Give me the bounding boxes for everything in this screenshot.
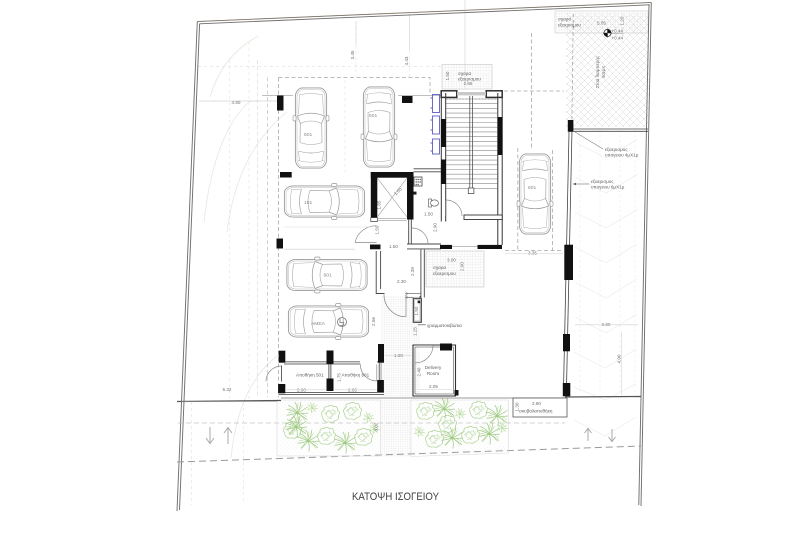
svg-text:1.30: 1.30 [515,402,520,411]
svg-text:3.02: 3.02 [374,422,379,431]
svg-text:601: 601 [324,273,332,279]
svg-text:Αποθήκη 501: Αποθήκη 501 [296,372,324,378]
svg-text:3.45: 3.45 [350,50,355,59]
svg-text:4.43: 4.43 [404,56,409,65]
svg-text:1.65: 1.65 [377,200,382,209]
svg-text:601: 601 [528,185,536,191]
svg-text:Delivery: Delivery [425,365,442,370]
svg-text:2.00: 2.00 [460,262,465,271]
svg-text:1.50: 1.50 [445,71,450,80]
svg-text:υπογειου 6μΧ1μ: υπογειου 6μΧ1μ [591,185,625,190]
svg-text:υπογειου 4μΧ1μ: υπογειου 4μΧ1μ [605,153,639,158]
svg-text:1.50: 1.50 [424,212,433,217]
svg-text:Room: Room [427,371,439,376]
svg-text:1.50: 1.50 [375,225,380,234]
svg-text:2.65: 2.65 [464,81,473,86]
svg-text:Στοά διαμπερής: Στοά διαμπερής [594,55,600,88]
svg-text:2.39: 2.39 [410,267,415,276]
svg-text:1.20: 1.20 [620,16,625,25]
svg-text:4.60: 4.60 [232,100,241,105]
svg-text:30τμΧ: 30τμΧ [601,66,606,79]
svg-text:σχαρα: σχαρα [558,17,571,22]
svg-text:ΑΜΕΑ: ΑΜΕΑ [311,321,326,327]
svg-text:+0.44: +0.44 [612,36,624,41]
svg-text:101: 101 [304,200,312,206]
svg-text:2.05: 2.05 [429,384,438,389]
svg-text:σκυβαλαποθήκη: σκυβαλαποθήκη [519,408,553,414]
svg-text:1.50: 1.50 [414,306,419,315]
svg-text:2.90: 2.90 [433,223,438,232]
svg-text:Αποθήκη 601: Αποθήκη 601 [342,372,370,378]
svg-text:5.05: 5.05 [597,21,606,26]
svg-text:2.56: 2.56 [371,317,376,326]
svg-text:4.90: 4.90 [617,354,622,363]
svg-text:5.32: 5.32 [223,387,232,392]
svg-text:2.30: 2.30 [397,279,406,284]
svg-text:501: 501 [369,113,377,119]
svg-text:ΚΑΤΟΨΗ ΙΣΟΓΕΙΟΥ: ΚΑΤΟΨΗ ΙΣΟΓΕΙΟΥ [352,491,439,503]
svg-text:3.00: 3.00 [447,258,456,263]
svg-text:1.25: 1.25 [413,327,418,336]
svg-text:2.40: 2.40 [417,367,422,376]
svg-text:501: 501 [304,132,312,138]
svg-text:3.35: 3.35 [528,251,537,256]
svg-text:γραμματοκιβώτια: γραμματοκιβώτια [427,322,462,328]
svg-text:+0.44: +0.44 [612,29,624,34]
svg-text:1.50: 1.50 [389,244,398,249]
svg-text:3.80: 3.80 [602,322,611,327]
svg-text:σχαρα: σχαρα [458,71,471,76]
svg-text:σχαρα: σχαρα [433,265,446,270]
svg-text:2.80: 2.80 [532,401,541,406]
svg-text:1.75: 1.75 [337,373,342,382]
